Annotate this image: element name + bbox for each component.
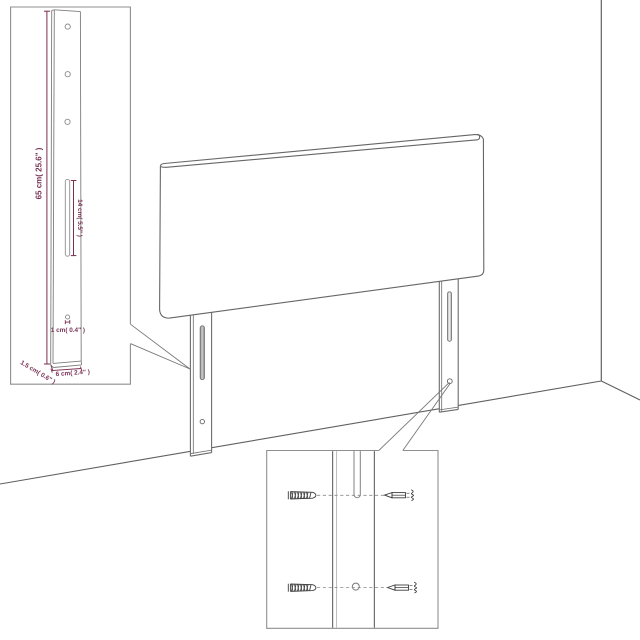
svg-text:1 cm( 0.4" ): 1 cm( 0.4" )	[51, 327, 85, 334]
svg-text:14 cm( 5.5" ): 14 cm( 5.5" )	[76, 199, 83, 237]
svg-text:65 cm( 25.6" ): 65 cm( 25.6" )	[35, 147, 44, 199]
